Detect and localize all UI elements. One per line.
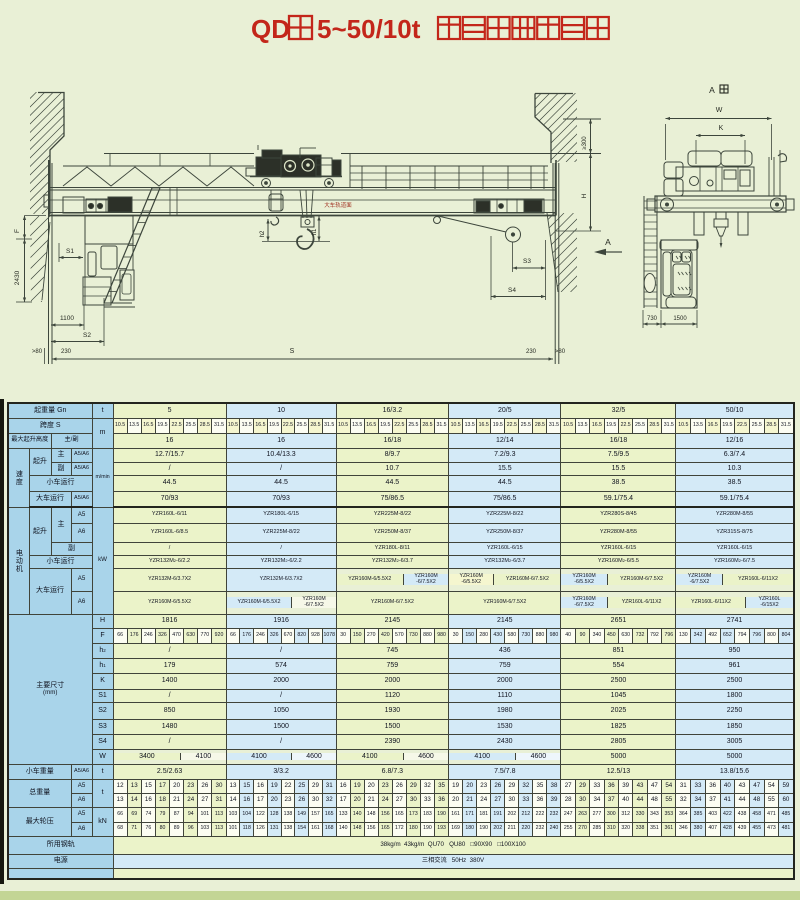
svg-text:大车轨道面: 大车轨道面	[324, 201, 352, 209]
svg-text:1500: 1500	[673, 316, 687, 322]
svg-text:>80: >80	[555, 349, 566, 355]
svg-text:H: H	[581, 193, 588, 198]
svg-text:A: A	[709, 85, 715, 95]
svg-text:230: 230	[61, 349, 72, 355]
svg-text:730: 730	[647, 316, 658, 322]
svg-text:h2: h2	[260, 230, 266, 237]
svg-text:2430: 2430	[14, 270, 21, 285]
svg-text:>80: >80	[32, 349, 43, 355]
svg-text:A: A	[605, 237, 611, 247]
svg-text:S4: S4	[508, 287, 516, 294]
svg-text:K: K	[719, 125, 724, 132]
svg-text:S: S	[290, 348, 295, 355]
svg-text:S1: S1	[66, 248, 74, 255]
svg-text:W: W	[716, 107, 723, 114]
svg-text:1100: 1100	[60, 315, 74, 322]
svg-text:≥300: ≥300	[582, 136, 588, 150]
svg-text:S3: S3	[523, 258, 531, 265]
svg-text:230: 230	[526, 349, 537, 355]
svg-text:h1: h1	[312, 228, 318, 235]
svg-text:S2: S2	[83, 332, 91, 339]
svg-text:F: F	[14, 229, 21, 233]
